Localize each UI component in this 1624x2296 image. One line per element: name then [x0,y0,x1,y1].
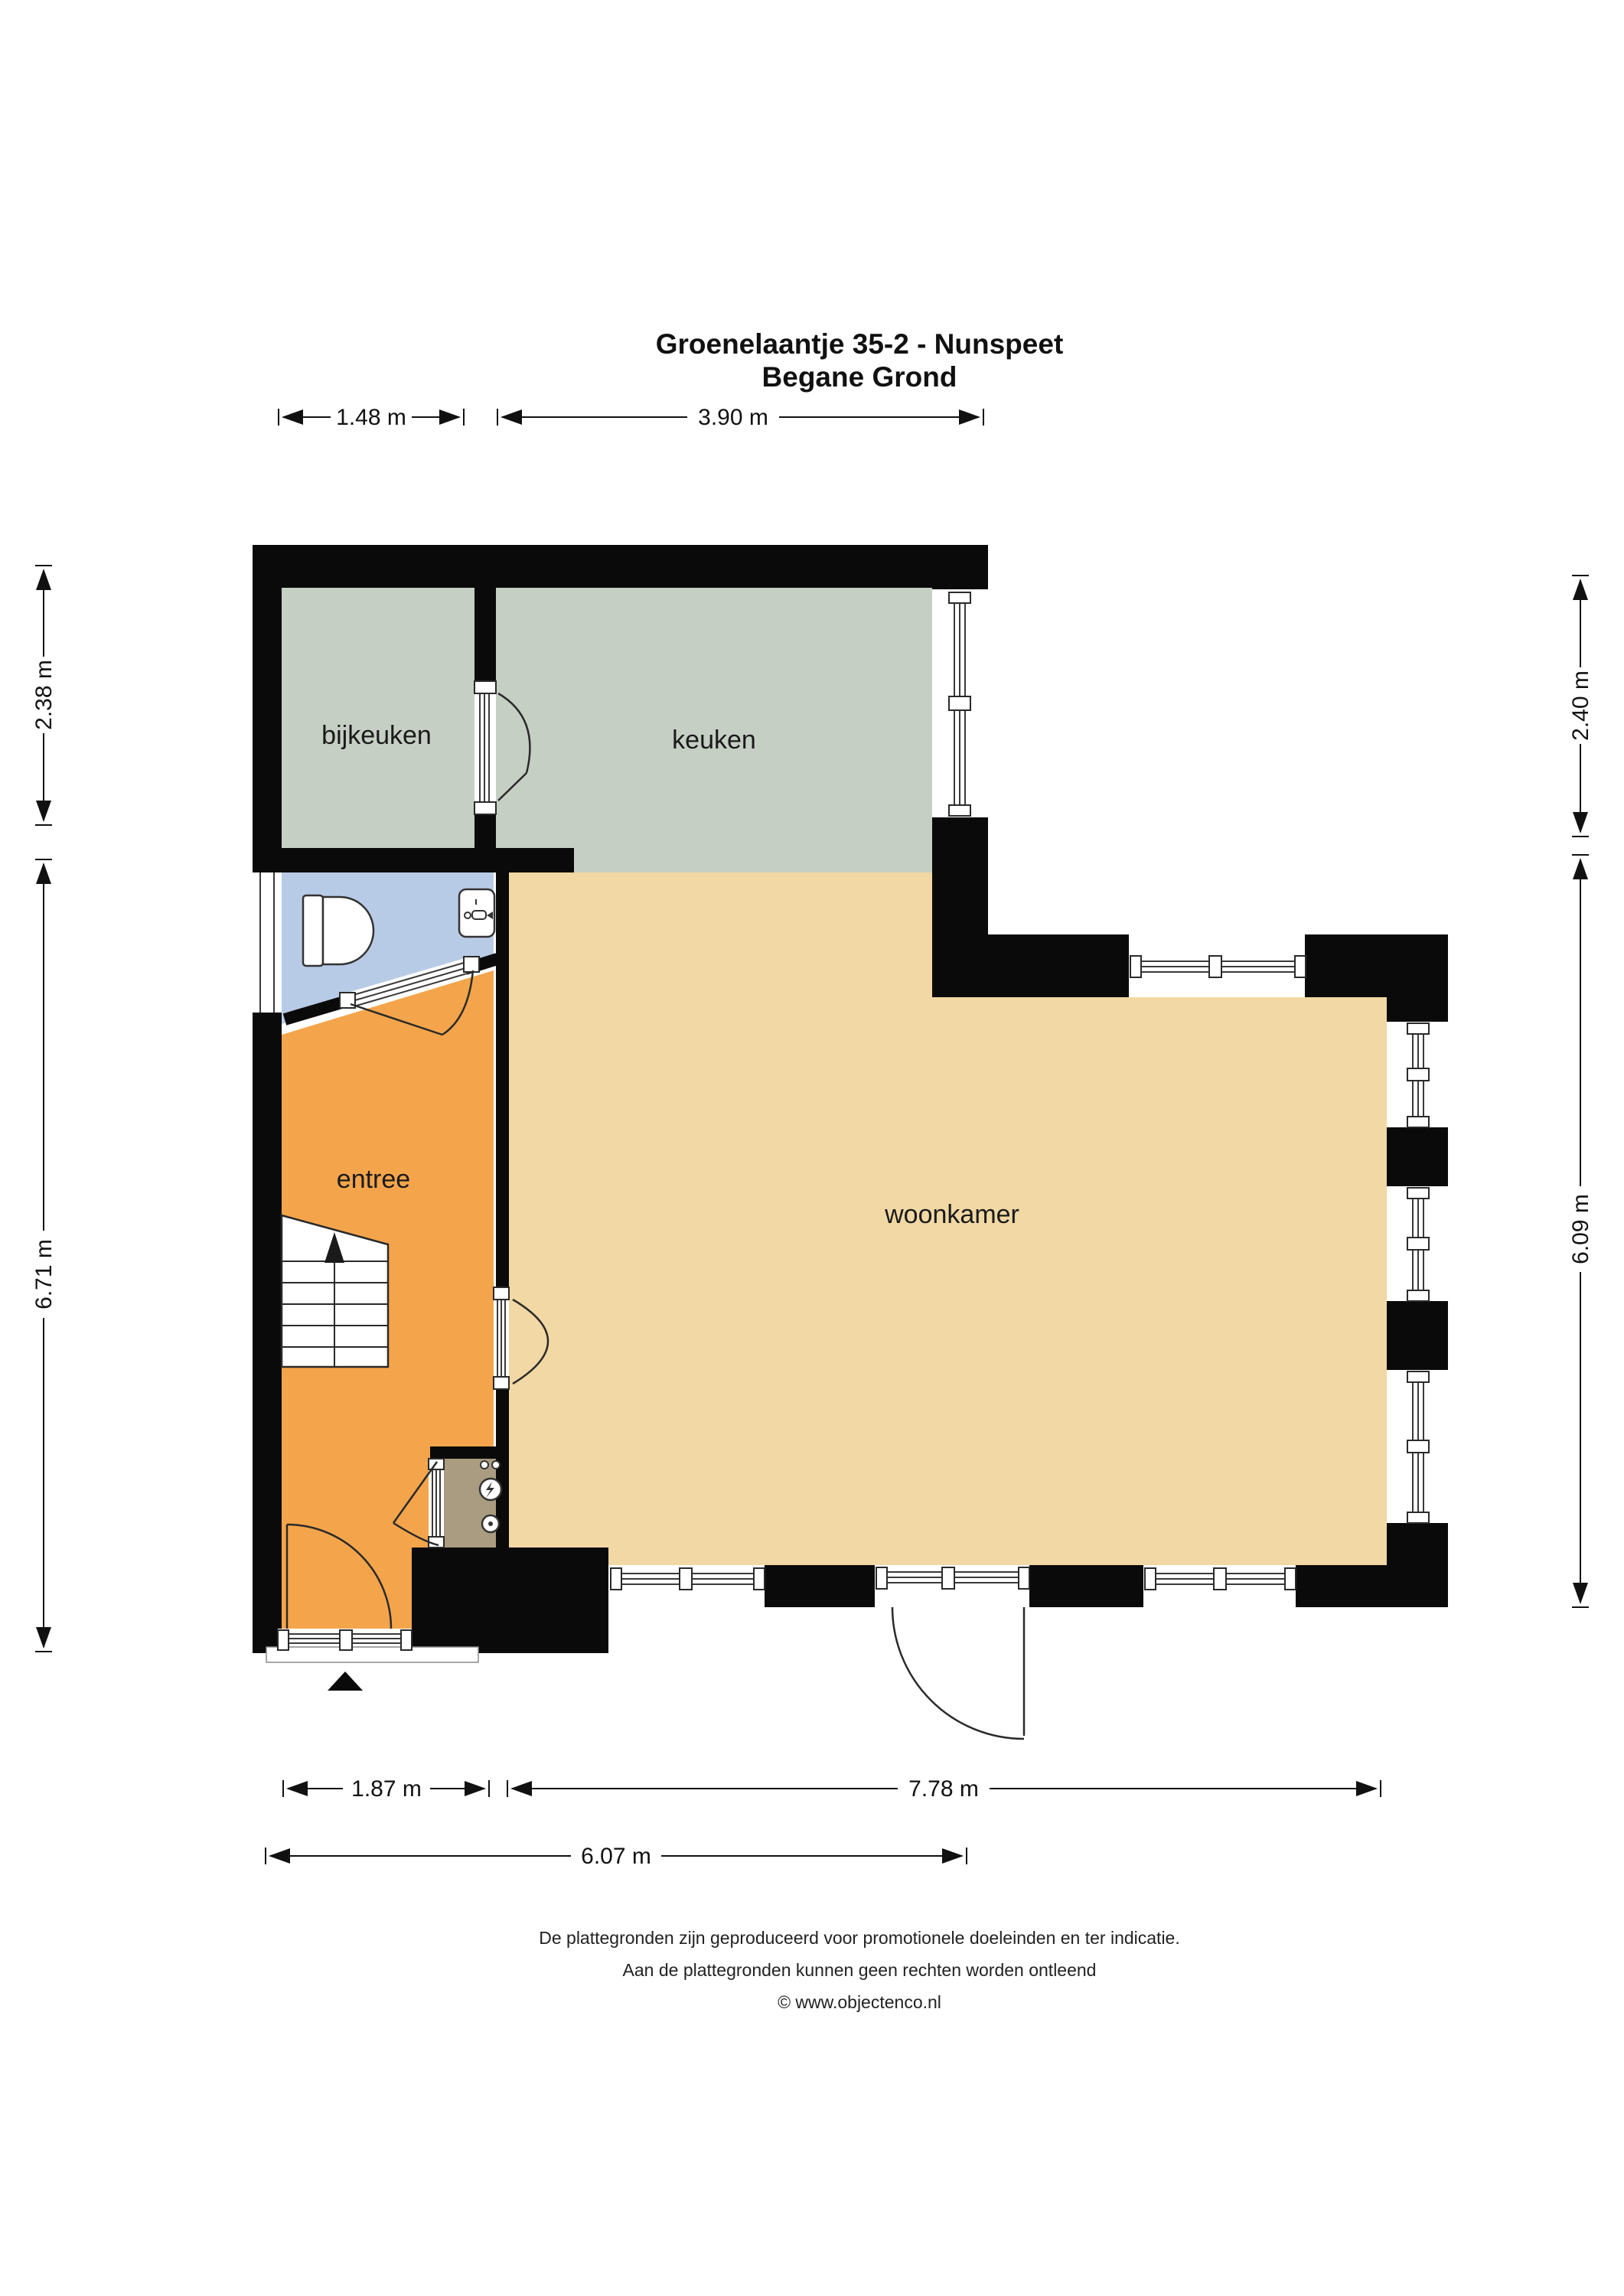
svg-text:1.48 m: 1.48 m [336,405,406,430]
wall-bottom-corner [1296,1565,1448,1607]
window-right-2 [1387,1186,1448,1301]
svg-text:6.09 m: 6.09 m [1568,1194,1593,1264]
label-woonkamer: woonkamer [884,1200,1019,1229]
wall-right-pier2 [1387,1301,1448,1370]
dim-bottom-1: 1.87 m [283,1776,489,1802]
dim-right-1: 2.40 m [1568,576,1593,837]
page-title: Groenelaantje 35-2 - Nunspeet [656,328,1064,360]
footer-copyright: © www.objectenco.nl [778,1992,941,2012]
svg-text:2.40 m: 2.40 m [1568,670,1593,741]
svg-text:2.38 m: 2.38 m [31,660,57,730]
toilet-fixture [303,895,373,966]
svg-text:3.90 m: 3.90 m [698,405,768,430]
label-entree: entree [337,1165,410,1194]
sink-fixture [459,889,494,937]
wall-keuken-right-bottom [932,817,988,997]
floorplan-page: Groenelaantje 35-2 - Nunspeet Begane Gro… [0,0,1624,2296]
dim-bottom-3: 6.07 m [266,1844,967,1869]
window-keuken [932,589,988,817]
dim-top-2: 3.90 m [497,405,983,430]
svg-text:1.87 m: 1.87 m [351,1776,422,1802]
label-keuken: keuken [672,726,756,755]
page-subtitle: Begane Grond [762,361,957,393]
svg-text:6.71 m: 6.71 m [31,1239,57,1309]
wall-bottom-pier1 [765,1565,875,1607]
wall-ext-top-left [988,934,1129,997]
footer-line-2: Aan de plattegronden kunnen geen rechten… [623,1960,1097,1980]
wall-divider-upper [474,588,496,681]
door-garden [875,1565,1029,1739]
window-right-1 [1387,1022,1448,1127]
window-toilet [253,872,282,1013]
svg-text:6.07 m: 6.07 m [581,1844,651,1869]
wall-toilet-top [253,848,574,872]
wall-keuken-right-top [932,545,988,591]
dim-top-1: 1.48 m [279,405,464,430]
wall-right-pier1 [1387,1127,1448,1186]
dim-right-2: 6.09 m [1568,855,1593,1607]
wall-left-upper [253,545,282,872]
room-meterkast [444,1459,496,1548]
svg-text:7.78 m: 7.78 m [908,1776,979,1802]
window-woonkamer-top [1129,934,1306,997]
dim-bottom-2: 7.78 m [507,1776,1381,1802]
window-bottom-1 [609,1565,765,1607]
window-bottom-2 [1143,1565,1296,1607]
footer-line-1: De plattegronden zijn geproduceerd voor … [539,1928,1180,1948]
wall-ext-top-right [1305,934,1448,997]
window-right-3 [1387,1370,1448,1523]
wall-left-lower [253,1013,282,1653]
wall-top [253,545,988,588]
dim-left-2: 6.71 m [31,859,57,1652]
wall-meterkast-top [430,1446,509,1459]
footer: De plattegronden zijn geproduceerd voor … [539,1928,1180,2012]
wall-right-corner-top [1387,991,1448,1022]
floorplan-canvas: Groenelaantje 35-2 - Nunspeet Begane Gro… [0,0,1624,2296]
label-bijkeuken: bijkeuken [321,721,432,750]
wall-bottom-pier2 [1029,1565,1143,1607]
room-floors [282,588,1387,1629]
dim-left-1: 2.38 m [31,566,57,825]
entrance-arrow [328,1671,363,1691]
wall-entree-right-upper [496,872,509,1287]
room-bijkeuken [282,588,474,848]
